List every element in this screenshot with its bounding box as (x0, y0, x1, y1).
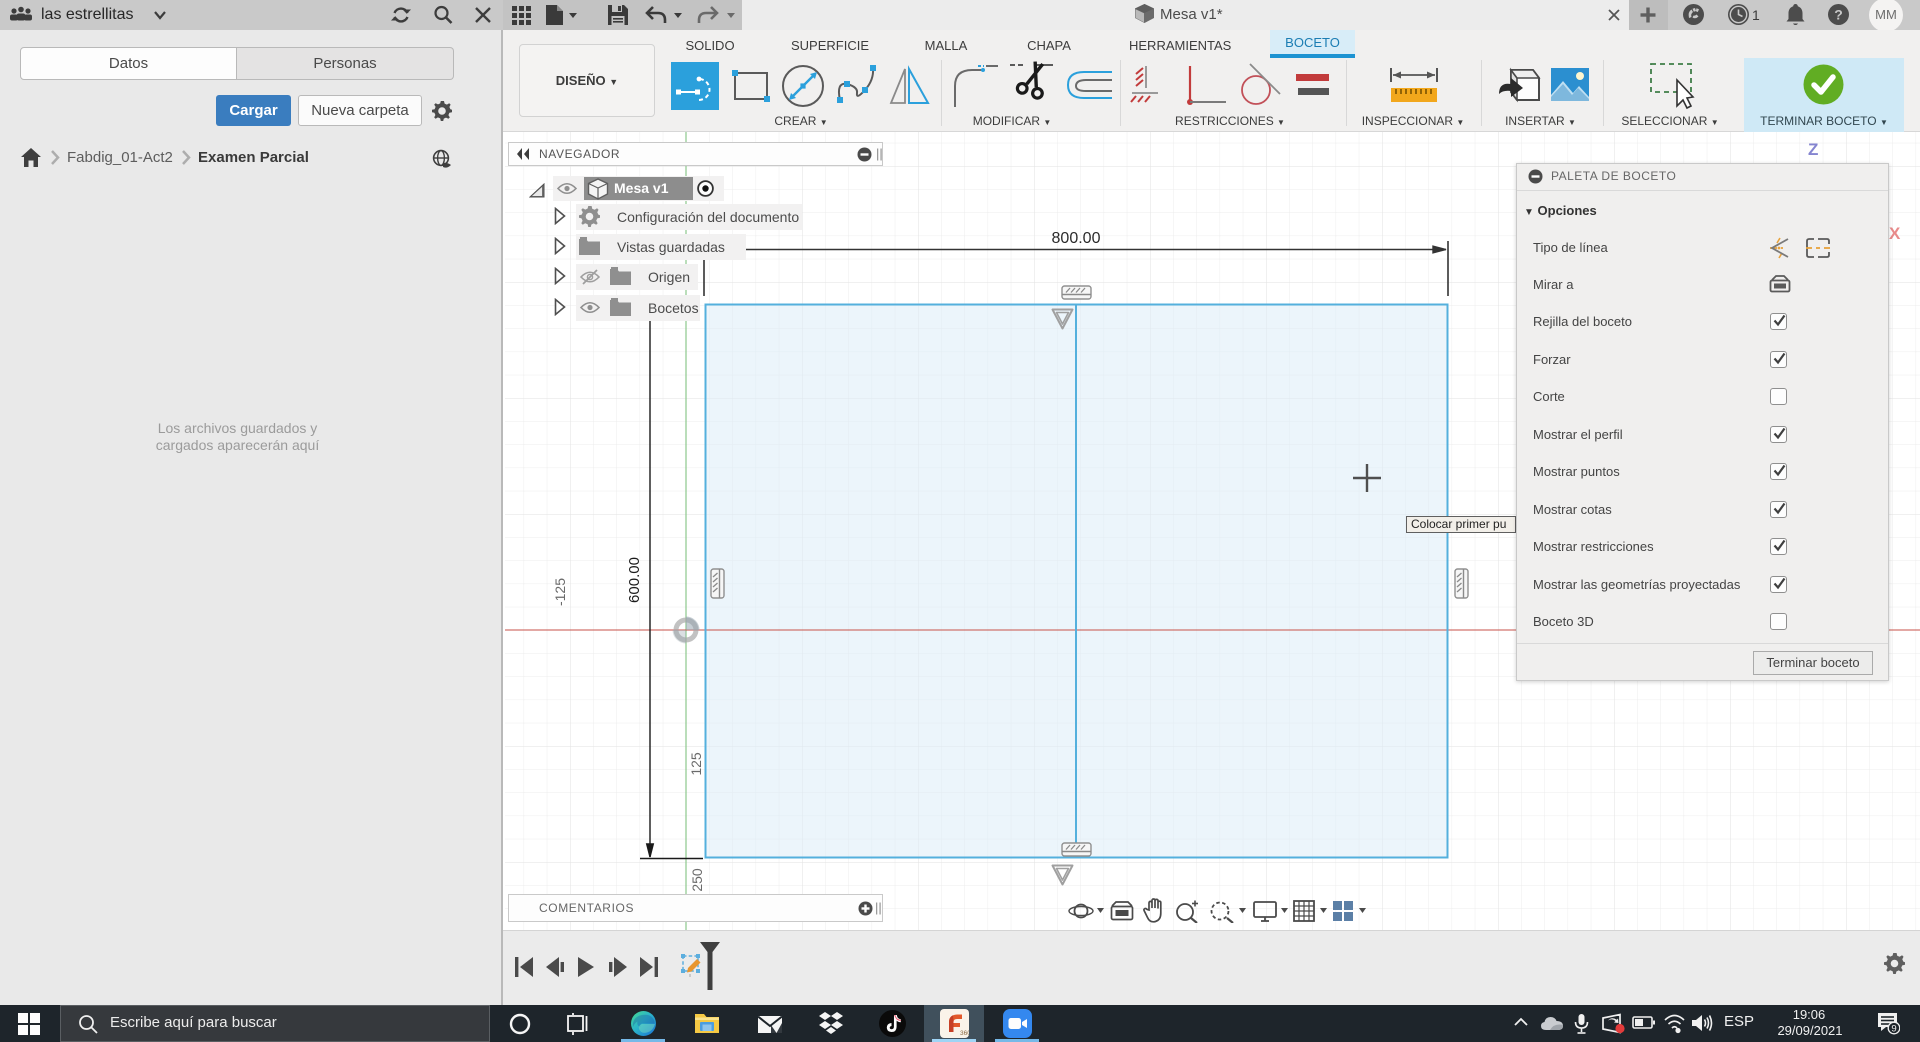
svg-text:-125: -125 (552, 578, 568, 606)
svg-text:250: 250 (689, 868, 705, 892)
svg-text:600.00: 600.00 (626, 557, 643, 603)
svg-text:125: 125 (688, 752, 704, 776)
svg-text:800.00: 800.00 (1052, 230, 1101, 247)
svg-text:9: 9 (1891, 1024, 1896, 1035)
svg-text:?: ? (1834, 7, 1843, 23)
svg-text:360: 360 (960, 1030, 969, 1037)
